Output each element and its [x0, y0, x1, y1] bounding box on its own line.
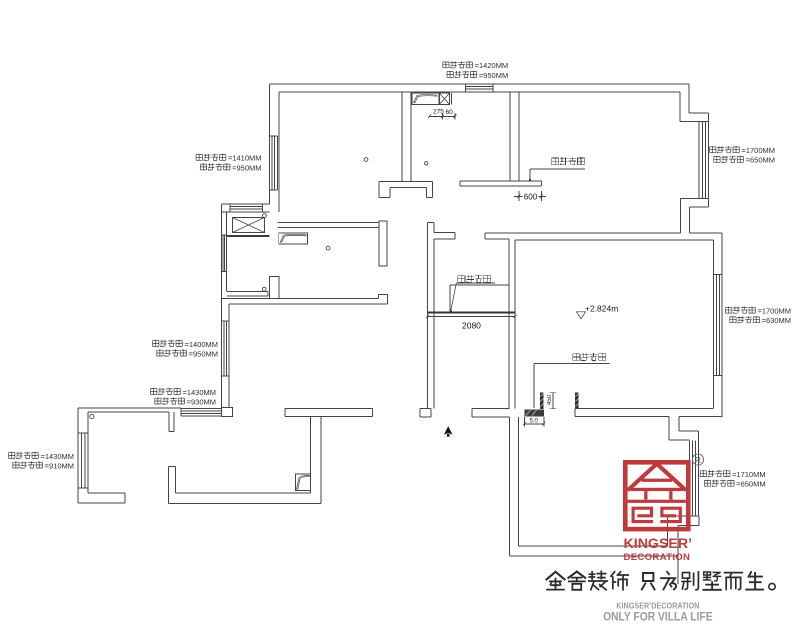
svg-text:600: 600	[524, 193, 538, 202]
svg-text:=930MM: =930MM	[187, 397, 216, 406]
svg-text:=1420MM: =1420MM	[475, 61, 509, 70]
svg-text:450: 450	[547, 394, 553, 405]
svg-text:=1710MM: =1710MM	[732, 470, 766, 479]
svg-text:=630MM: =630MM	[762, 316, 791, 325]
svg-text:=1700MM: =1700MM	[741, 146, 775, 155]
svg-text:=1410MM: =1410MM	[228, 154, 262, 163]
svg-text:60: 60	[446, 109, 454, 116]
svg-text:+2.824m: +2.824m	[585, 304, 618, 314]
svg-text:KINGSER’: KINGSER’	[624, 536, 693, 552]
svg-text:=910MM: =910MM	[45, 461, 74, 470]
svg-text:DECORATION: DECORATION	[624, 552, 691, 563]
svg-text:=650MM: =650MM	[746, 156, 775, 165]
svg-text:=950MM: =950MM	[232, 163, 261, 172]
svg-text:=650MM: =650MM	[736, 480, 765, 489]
svg-text:ONLY FOR VILLA LIFE: ONLY FOR VILLA LIFE	[603, 609, 713, 623]
svg-text:=1430MM: =1430MM	[40, 452, 74, 461]
svg-text:=950MM: =950MM	[189, 349, 218, 358]
svg-text:=1700MM: =1700MM	[757, 307, 791, 316]
svg-text:R: R	[695, 455, 701, 465]
svg-text:2080: 2080	[462, 321, 481, 331]
svg-text:=1430MM: =1430MM	[182, 388, 216, 397]
svg-text:=950MM: =950MM	[479, 71, 508, 80]
svg-text:=1400MM: =1400MM	[184, 340, 218, 349]
